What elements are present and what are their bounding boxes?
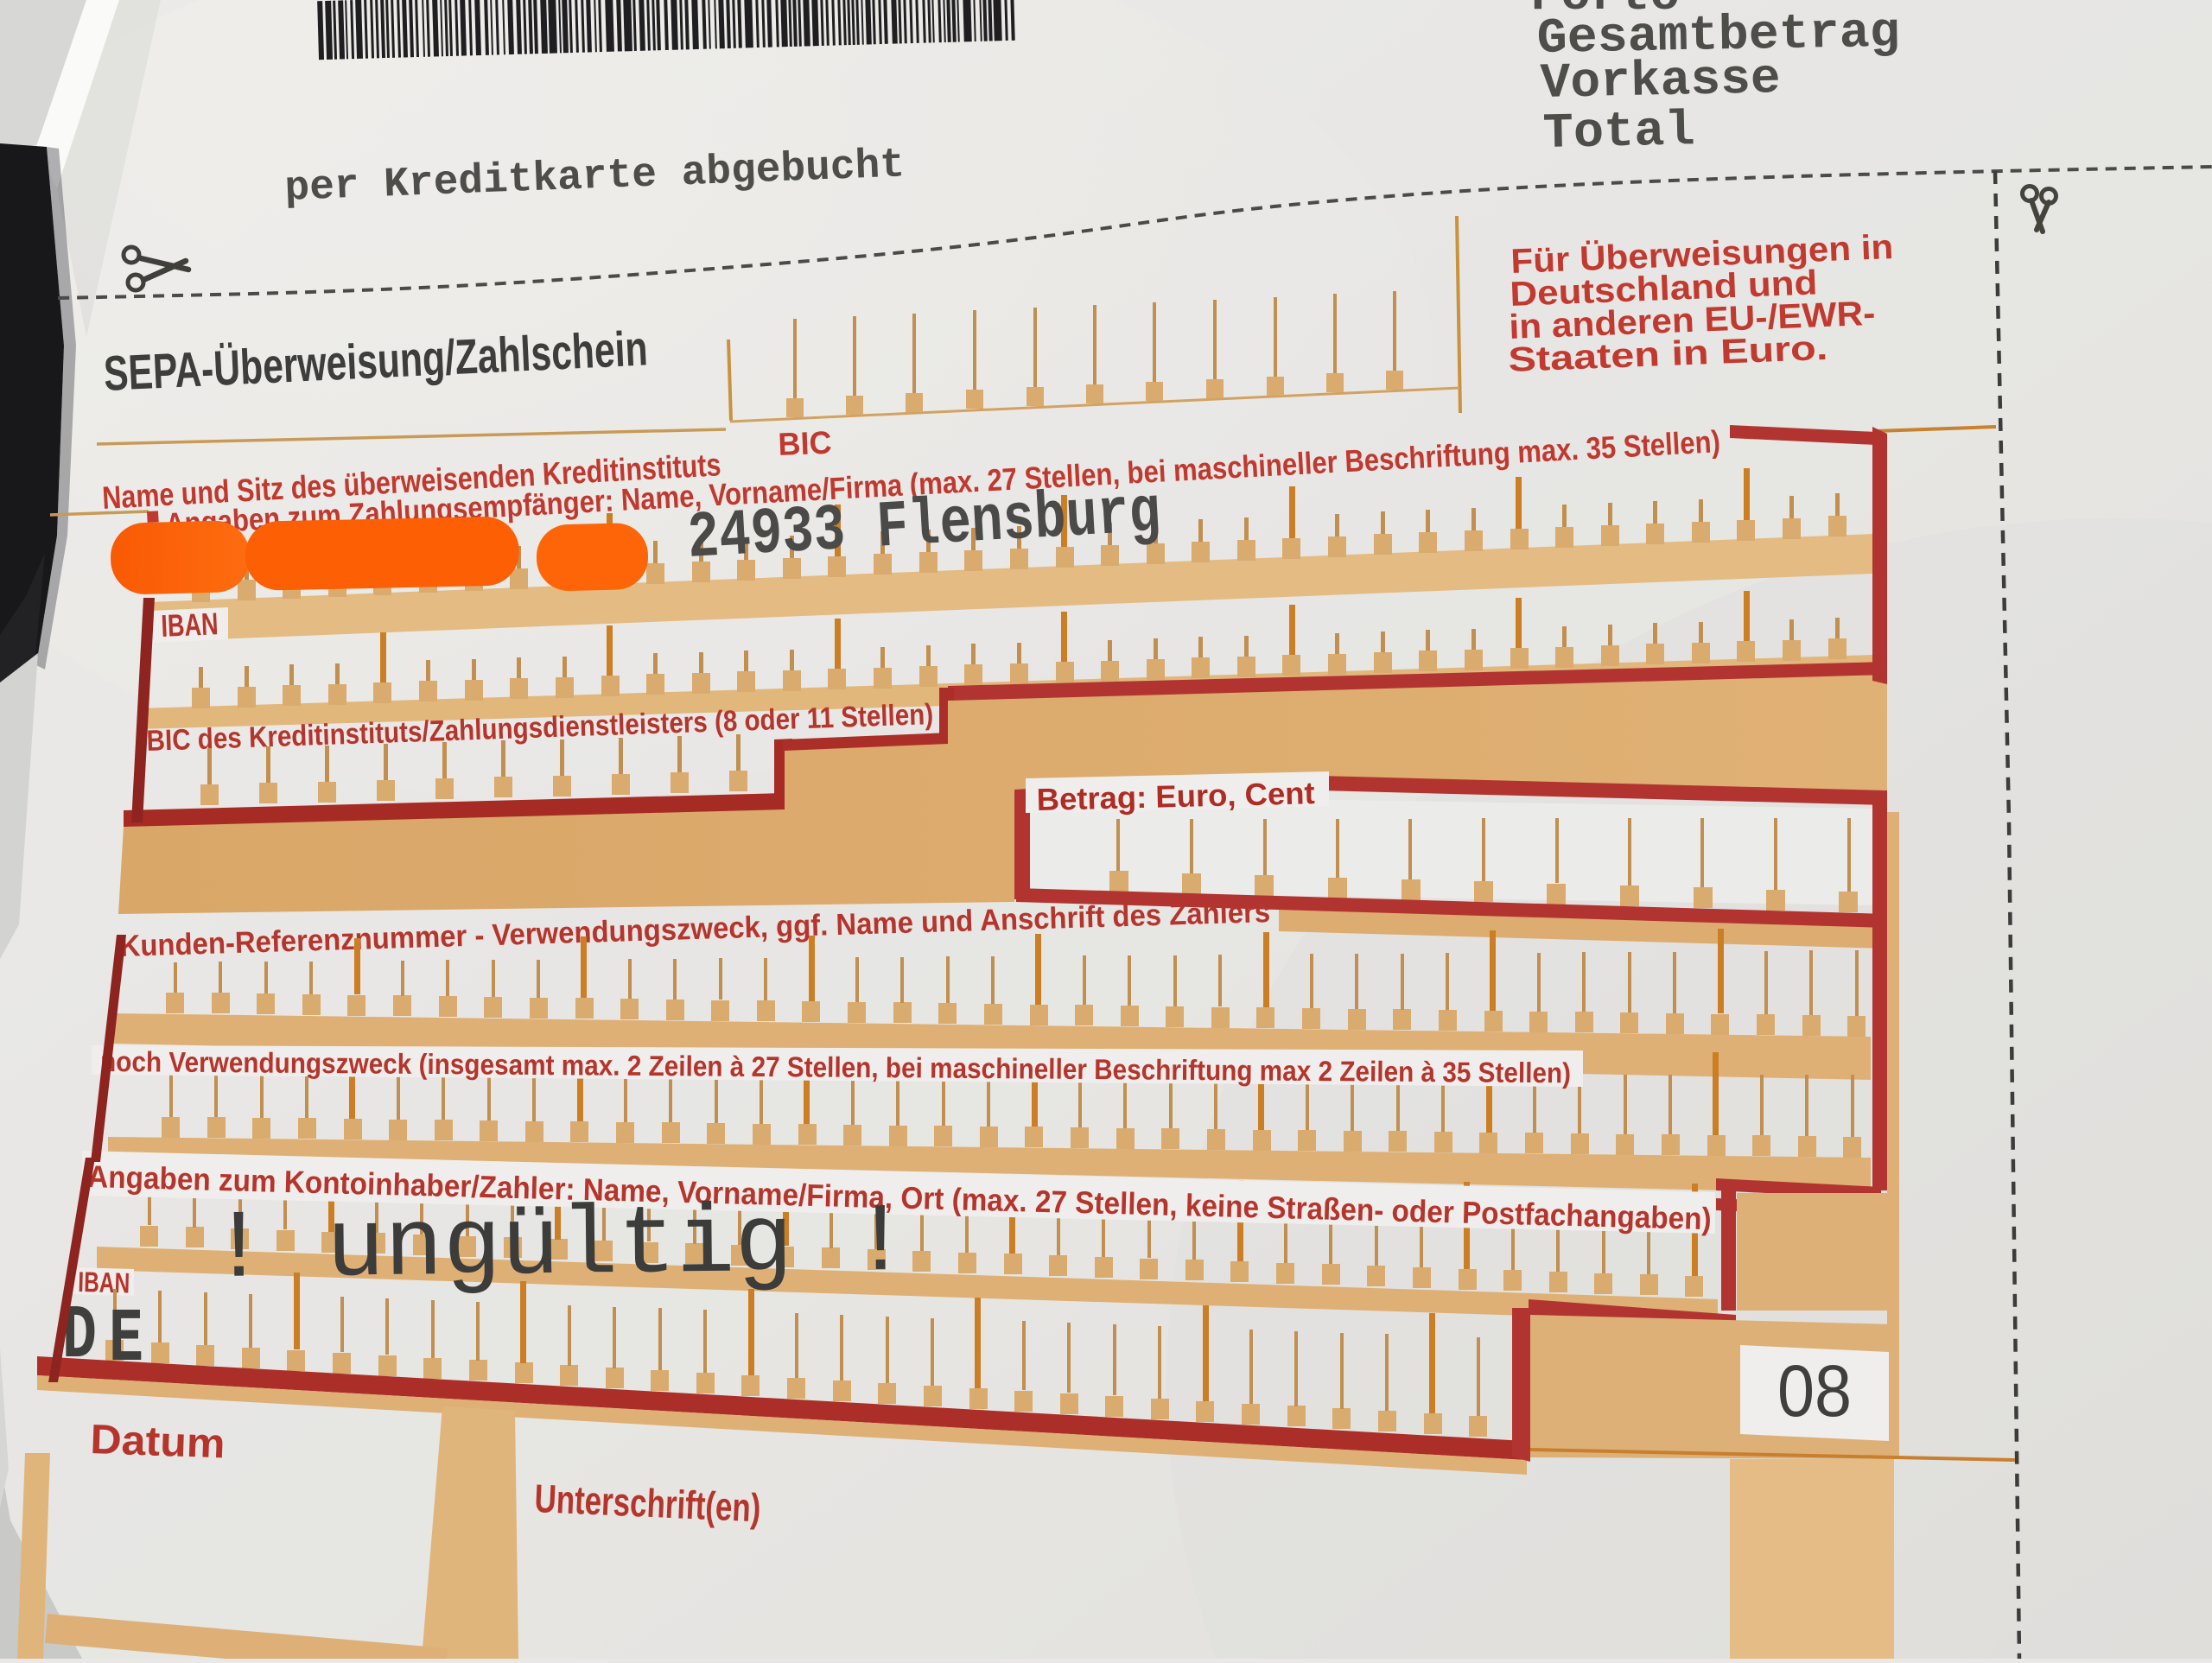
svg-text:IBAN: IBAN	[161, 606, 219, 644]
svg-text:! ungültig !: ! ungültig !	[209, 1189, 910, 1305]
svg-text:Vorkasse: Vorkasse	[1540, 52, 1781, 112]
svg-text:Betrag: Euro, Cent: Betrag: Euro, Cent	[1036, 775, 1315, 817]
svg-text:Total: Total	[1542, 104, 1695, 162]
svg-text:08: 08	[1777, 1350, 1852, 1431]
svg-text:Datum: Datum	[90, 1417, 226, 1467]
svg-text:BIC: BIC	[778, 425, 833, 462]
